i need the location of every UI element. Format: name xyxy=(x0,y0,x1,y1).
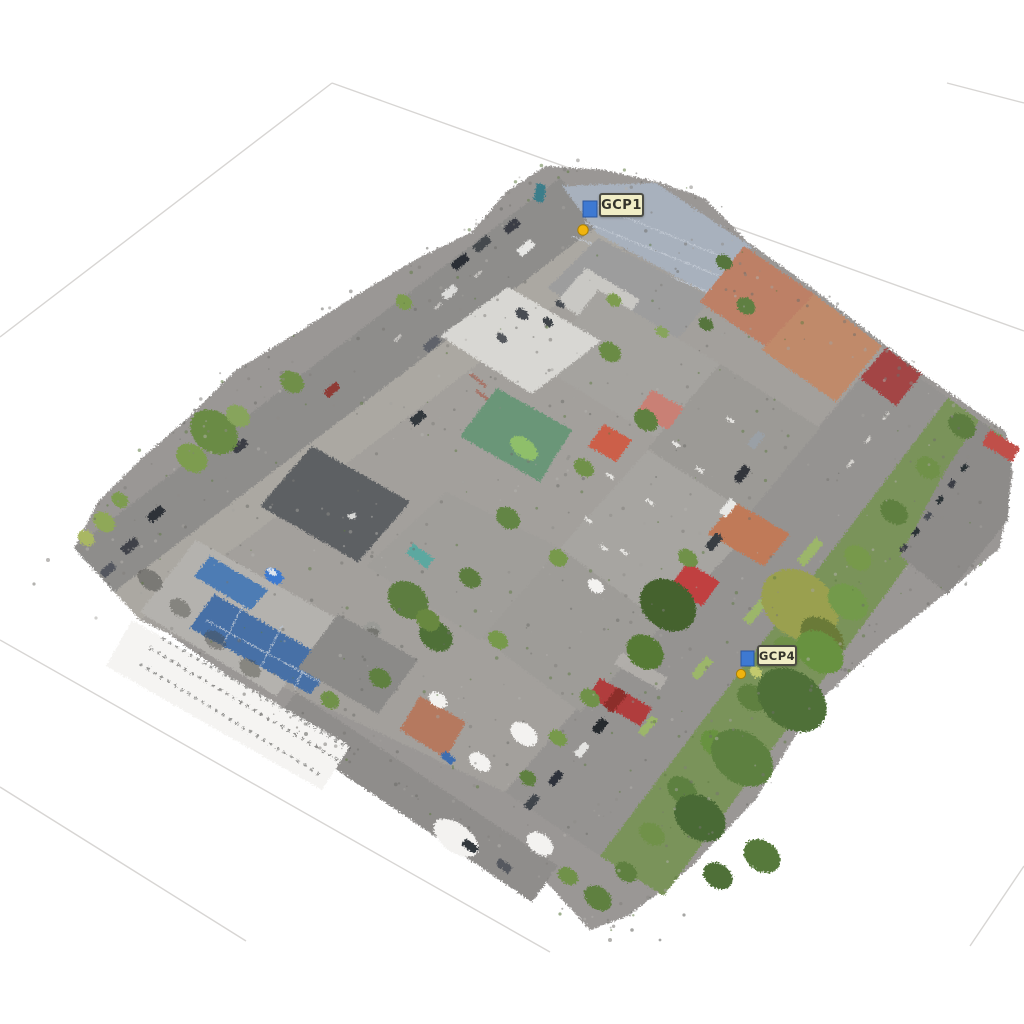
gcp1-flag-icon[interactable] xyxy=(583,201,597,217)
gcp1-label[interactable]: GCP1 xyxy=(599,193,644,217)
point-cloud-canvas[interactable] xyxy=(0,0,1024,1024)
gcp1-point[interactable] xyxy=(578,225,588,235)
gcp4-point[interactable] xyxy=(736,669,745,678)
gcp4-flag-icon[interactable] xyxy=(741,651,754,666)
gcp4-label[interactable]: GCP4 xyxy=(757,645,797,666)
point-cloud xyxy=(74,166,1020,930)
point-cloud-viewport[interactable]: GCP1 GCP4 xyxy=(0,0,1024,1024)
